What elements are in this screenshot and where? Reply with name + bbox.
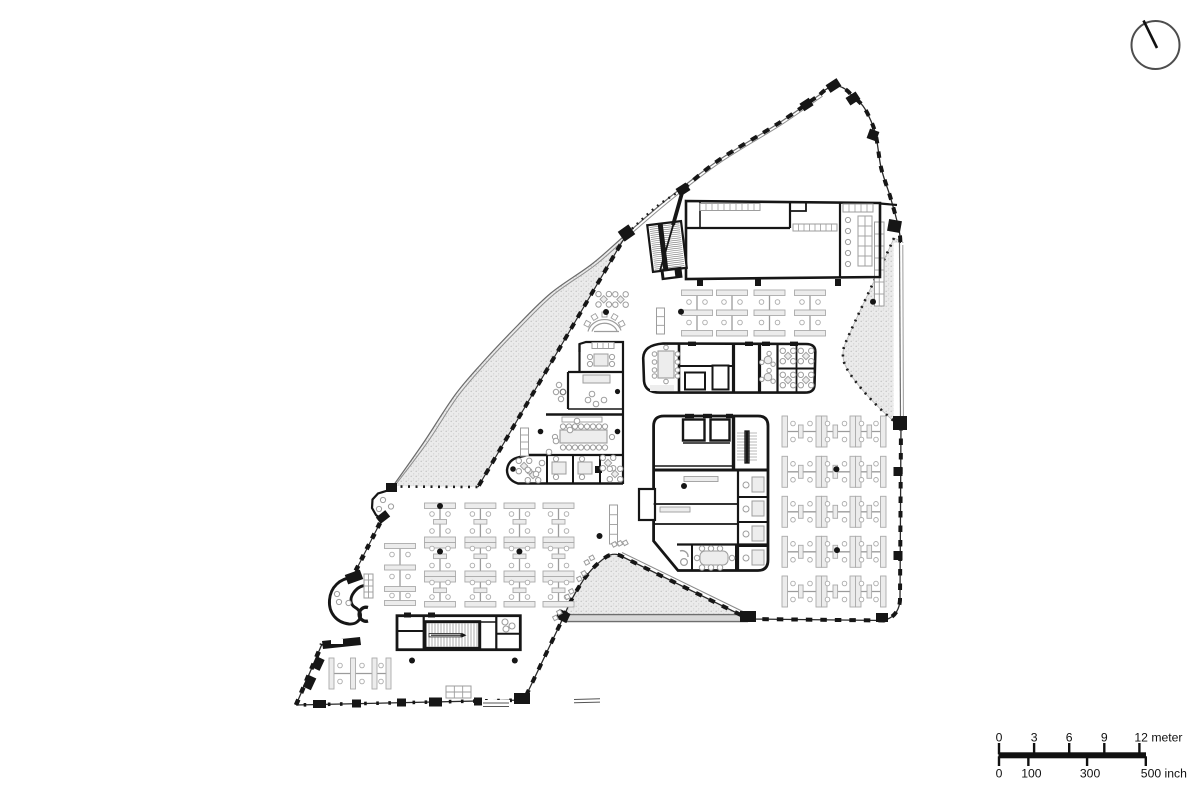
svg-text:9: 9	[1101, 731, 1108, 745]
svg-text:500 inch: 500 inch	[1141, 767, 1187, 781]
svg-text:100: 100	[1021, 767, 1042, 781]
svg-text:3: 3	[1031, 731, 1038, 745]
svg-text:12 meter: 12 meter	[1134, 731, 1182, 745]
svg-text:300: 300	[1080, 767, 1101, 781]
svg-text:6: 6	[1066, 731, 1073, 745]
svg-text:0: 0	[996, 767, 1003, 781]
svg-text:0: 0	[996, 731, 1003, 745]
